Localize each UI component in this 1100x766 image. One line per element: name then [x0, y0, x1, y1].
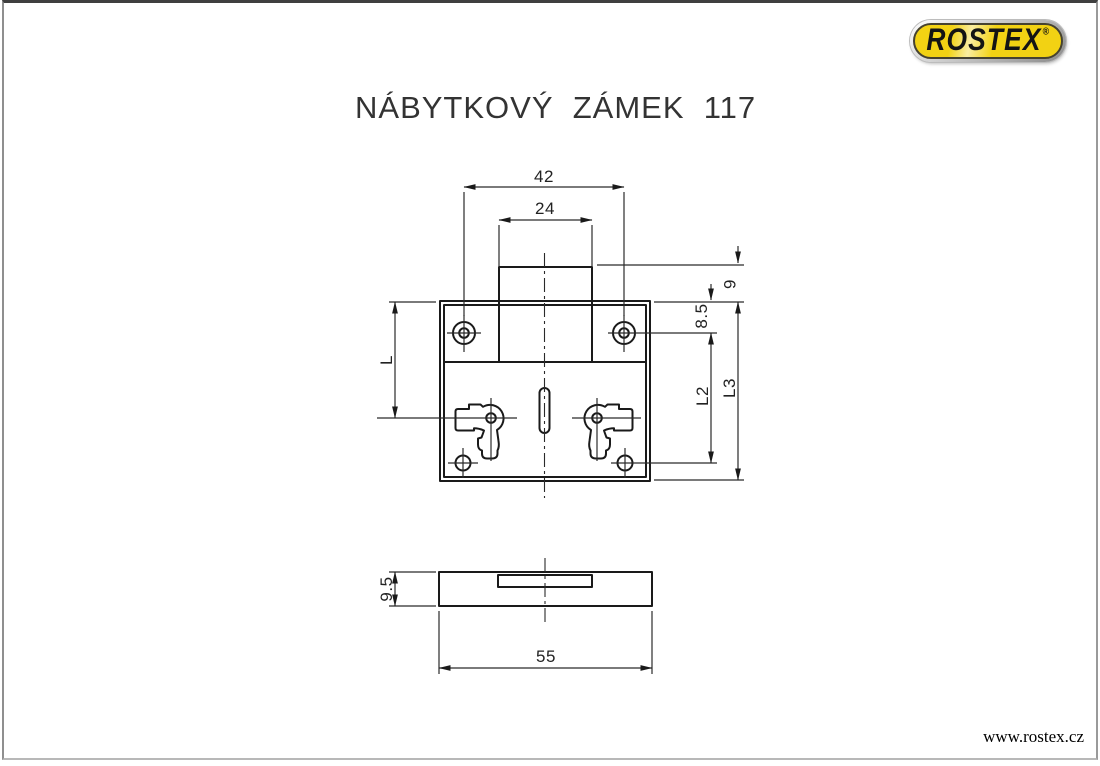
lock-tab-outline	[499, 267, 592, 362]
dim-label-42: 42	[534, 167, 554, 186]
dim-label-55: 55	[536, 647, 556, 666]
extension-lines	[389, 192, 744, 480]
bottom-view: 9.5 55	[377, 558, 652, 674]
dim-label-l2: L2	[693, 386, 712, 406]
dim-label-l3: L3	[720, 378, 739, 398]
website-url: www.rostex.cz	[983, 727, 1084, 747]
dim-label-9: 9	[721, 279, 740, 289]
dim-label-9-5: 9.5	[377, 576, 396, 601]
dim-label-24: 24	[535, 199, 555, 218]
dim-label-8-5: 8.5	[692, 303, 711, 328]
dim-label-l: L	[377, 355, 396, 365]
technical-drawing-canvas: 42 24 9 8.5 L L2 L3 9.5 55	[0, 0, 1100, 766]
front-view: 42 24 9 8.5 L L2 L3	[377, 167, 744, 498]
